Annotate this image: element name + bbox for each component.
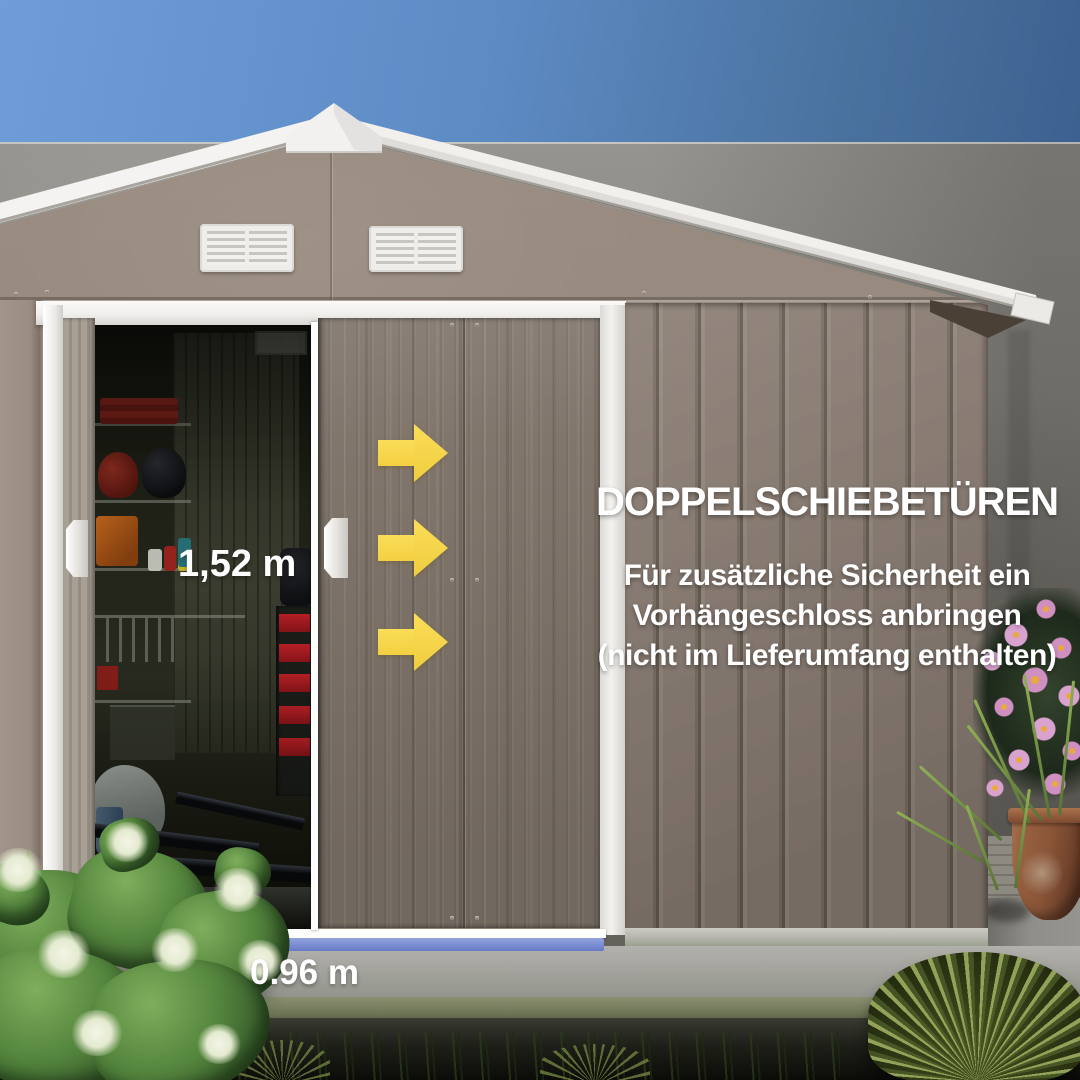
arrow-head [414, 424, 448, 482]
pink-daisy [1057, 684, 1080, 708]
pink-daisy [985, 778, 1005, 798]
arrow-right-icon [378, 519, 448, 577]
white-flower-cluster [70, 1010, 124, 1056]
arrow-tail [378, 535, 416, 561]
bush [0, 810, 330, 1080]
pot-stain [1022, 848, 1062, 898]
pink-daisy [993, 696, 1015, 718]
pot-rim [1008, 808, 1080, 823]
product-image: 1,52 m 0.96 m DOPPELSCHIEBETÜREN Für zus… [0, 0, 1080, 1080]
white-flower-cluster [150, 928, 200, 972]
door-height-label: 1,52 m [178, 543, 296, 586]
white-flower-cluster [104, 822, 150, 862]
white-flower-cluster [212, 868, 264, 912]
arrow-tail [378, 629, 416, 655]
subheadline-line: Für zusätzliche Sicherheit ein [570, 556, 1080, 596]
pink-daisy [1007, 748, 1031, 772]
white-flower-cluster [196, 1024, 242, 1064]
arrow-head [414, 613, 448, 671]
subheadline-line: (nicht im Lieferumfang enthalten) [570, 636, 1080, 676]
subheadline-line: Vorhängeschloss anbringen [570, 596, 1080, 636]
ornamental-grass [868, 952, 1080, 1080]
arrow-tail [378, 440, 416, 466]
headline: DOPPELSCHIEBETÜREN [572, 480, 1080, 525]
arrow-head [414, 519, 448, 577]
door-width-label: 0.96 m [250, 953, 359, 993]
arrow-right-icon [378, 424, 448, 482]
arrow-right-icon [378, 613, 448, 671]
subheadline: Für zusätzliche Sicherheit ein Vorhänges… [570, 556, 1080, 676]
white-flower-cluster [36, 930, 92, 978]
